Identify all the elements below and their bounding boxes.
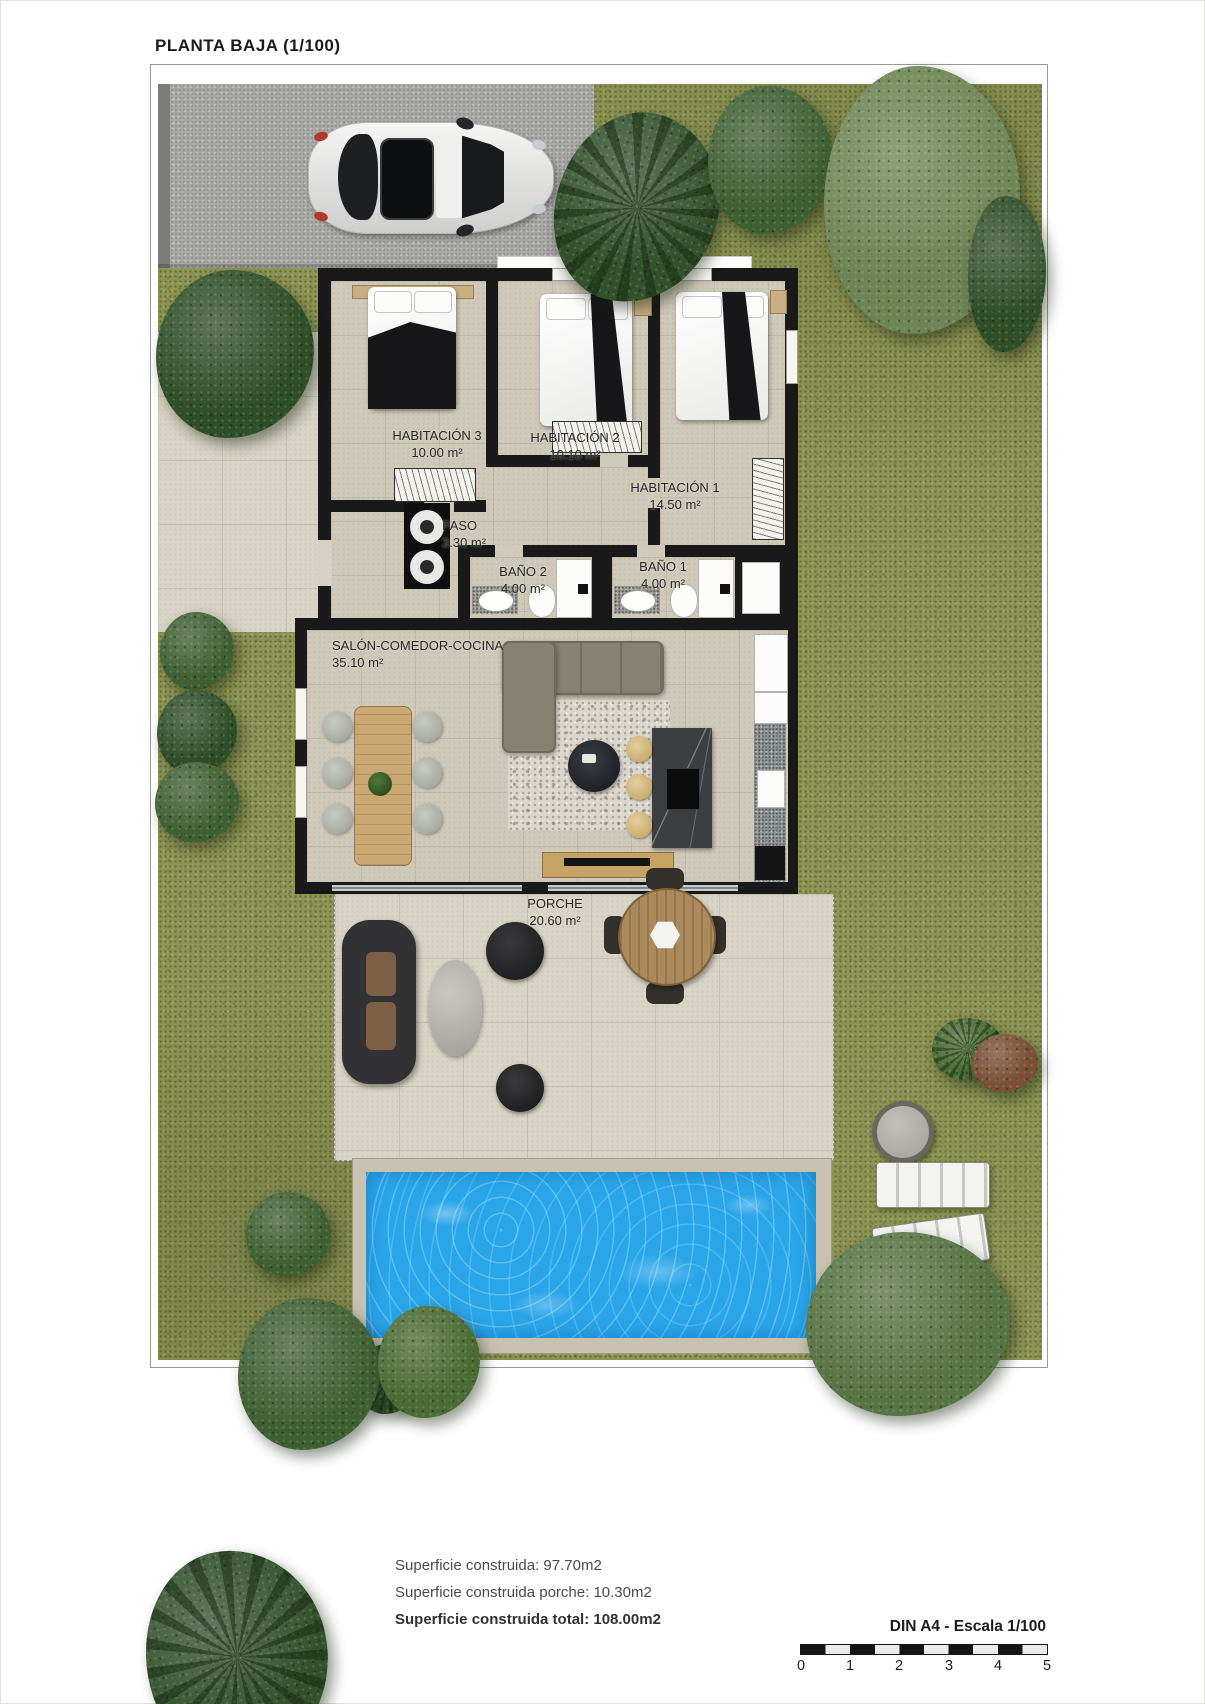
porch-chair: [646, 868, 684, 890]
dining-chair: [412, 712, 442, 742]
dining-chair: [322, 712, 352, 742]
kitchen-stove: [755, 846, 785, 880]
room-name: BAÑO 1: [639, 559, 687, 574]
room-name: HABITACIÓN 2: [530, 430, 619, 445]
room-name: HABITACIÓN 3: [392, 428, 481, 443]
shower-hab1: [742, 562, 780, 614]
scale-bar: [800, 1644, 1048, 1655]
room-name: HABITACIÓN 1: [630, 480, 719, 495]
porch-ottoman: [428, 960, 482, 1056]
shower-head-bano1: [720, 584, 730, 594]
car-top-view: [308, 116, 552, 238]
summary-construida: Superficie construida: 97.70m2: [395, 1552, 795, 1579]
window-salon-left-1: [295, 688, 307, 740]
room-label-habitacion2: HABITACIÓN 2 10.10 m²: [510, 430, 640, 463]
scale-tick-2: 2: [889, 1658, 909, 1674]
pillow: [546, 298, 586, 320]
sun-lounger: [876, 1162, 990, 1208]
room-area: 14.50 m²: [610, 497, 740, 514]
porch-sofa-cushion: [366, 1002, 396, 1050]
dining-chair: [412, 758, 442, 788]
plan-title: PLANTA BAJA (1/100): [155, 36, 575, 62]
sink-bano1: [620, 590, 656, 612]
room-name: PASO: [442, 518, 477, 533]
driveway-edge: [158, 84, 170, 268]
palm-tree-bottom-left: [129, 1536, 345, 1704]
scale-tick-1: 1: [840, 1658, 860, 1674]
scale-tick-4: 4: [988, 1658, 1008, 1674]
room-area: 35.10 m²: [332, 655, 522, 672]
scale-label: DIN A4 - Escala 1/100: [800, 1618, 1046, 1638]
room-name: SALÓN-COMEDOR-COCINA: [332, 638, 503, 653]
room-label-salon: SALÓN-COMEDOR-COCINA 35.10 m²: [332, 638, 522, 671]
bar-stool: [626, 812, 652, 838]
car-roof: [436, 136, 462, 218]
island-cooktop: [666, 768, 700, 810]
porch-pouf: [486, 922, 544, 980]
tree-bottom-center: [378, 1306, 480, 1418]
room-name: BAÑO 2: [499, 564, 547, 579]
blanket-habitacion3: [368, 322, 456, 409]
room-name: PORCHE: [527, 896, 583, 911]
window-hab1-right: [786, 330, 798, 384]
porch-sofa-cushion: [366, 952, 396, 996]
bar-stool: [626, 736, 652, 762]
car-rear-window: [338, 134, 378, 220]
scale-tick-0: 0: [791, 1658, 811, 1674]
wall-salon-top: [295, 618, 798, 630]
bush-bottom-left: [238, 1298, 380, 1450]
pillow: [414, 291, 452, 313]
room-label-paso: PASO 3.30 m²: [440, 518, 532, 551]
room-area: 4.00 m²: [618, 576, 708, 593]
room-area: 10.10 m²: [510, 447, 640, 464]
room-label-bano2: BAÑO 2 4.00 m²: [478, 564, 568, 597]
wardrobe-habitacion1: [752, 458, 784, 540]
summary-total: Superficie construida total: 108.00m2: [395, 1606, 795, 1633]
sliding-glass-door-2: [548, 885, 738, 891]
dining-chair: [322, 804, 352, 834]
large-tree-bottom-right: [806, 1232, 1010, 1416]
window-salon-left-2: [295, 766, 307, 818]
wall-banos-divider: [592, 557, 612, 618]
room-label-porche: PORCHE 20.60 m²: [495, 896, 615, 929]
coffee-table: [568, 740, 620, 792]
coffee-table-deco: [582, 754, 596, 763]
room-label-habitacion1: HABITACIÓN 1 14.50 m²: [610, 480, 740, 513]
sliding-glass-door-1: [332, 885, 522, 891]
dining-chair: [322, 758, 352, 788]
room-area: 20.60 m²: [495, 913, 615, 930]
floor-plan-page: PLANTA BAJA (1/100): [0, 0, 1205, 1704]
tv-screen: [564, 858, 650, 866]
summary-porche: Superficie construida porche: 10.30m2: [395, 1579, 795, 1606]
door-bano1: [637, 545, 665, 557]
room-area: 3.30 m²: [442, 535, 532, 552]
door-entrance: [318, 540, 332, 586]
car-headlight: [531, 203, 547, 216]
wall-salon-left: [295, 618, 307, 894]
shower-head-bano2: [578, 584, 588, 594]
room-area: 4.00 m²: [478, 581, 568, 598]
fridge: [754, 634, 788, 692]
dryer-drum: [410, 550, 444, 584]
table-plant: [368, 772, 392, 796]
wardrobe-habitacion3: [394, 468, 476, 502]
stone-side-table: [872, 1101, 934, 1163]
pillow: [682, 296, 722, 318]
room-area: 10.00 m²: [372, 445, 502, 462]
porch-pouf: [496, 1064, 544, 1112]
kitchen-sink: [757, 770, 785, 808]
scale-tick-5: 5: [1037, 1658, 1057, 1674]
nightstand-habitacion1: [770, 290, 787, 314]
room-label-bano1: BAÑO 1 4.00 m²: [618, 559, 708, 592]
kitchen-cabinet: [754, 692, 788, 724]
dining-chair: [412, 804, 442, 834]
bar-stool: [626, 774, 652, 800]
scale-tick-3: 3: [939, 1658, 959, 1674]
washer-drum: [410, 510, 444, 544]
pillow: [374, 291, 412, 313]
car-sunroof: [380, 138, 434, 220]
room-label-habitacion3: HABITACIÓN 3 10.00 m²: [372, 428, 502, 461]
